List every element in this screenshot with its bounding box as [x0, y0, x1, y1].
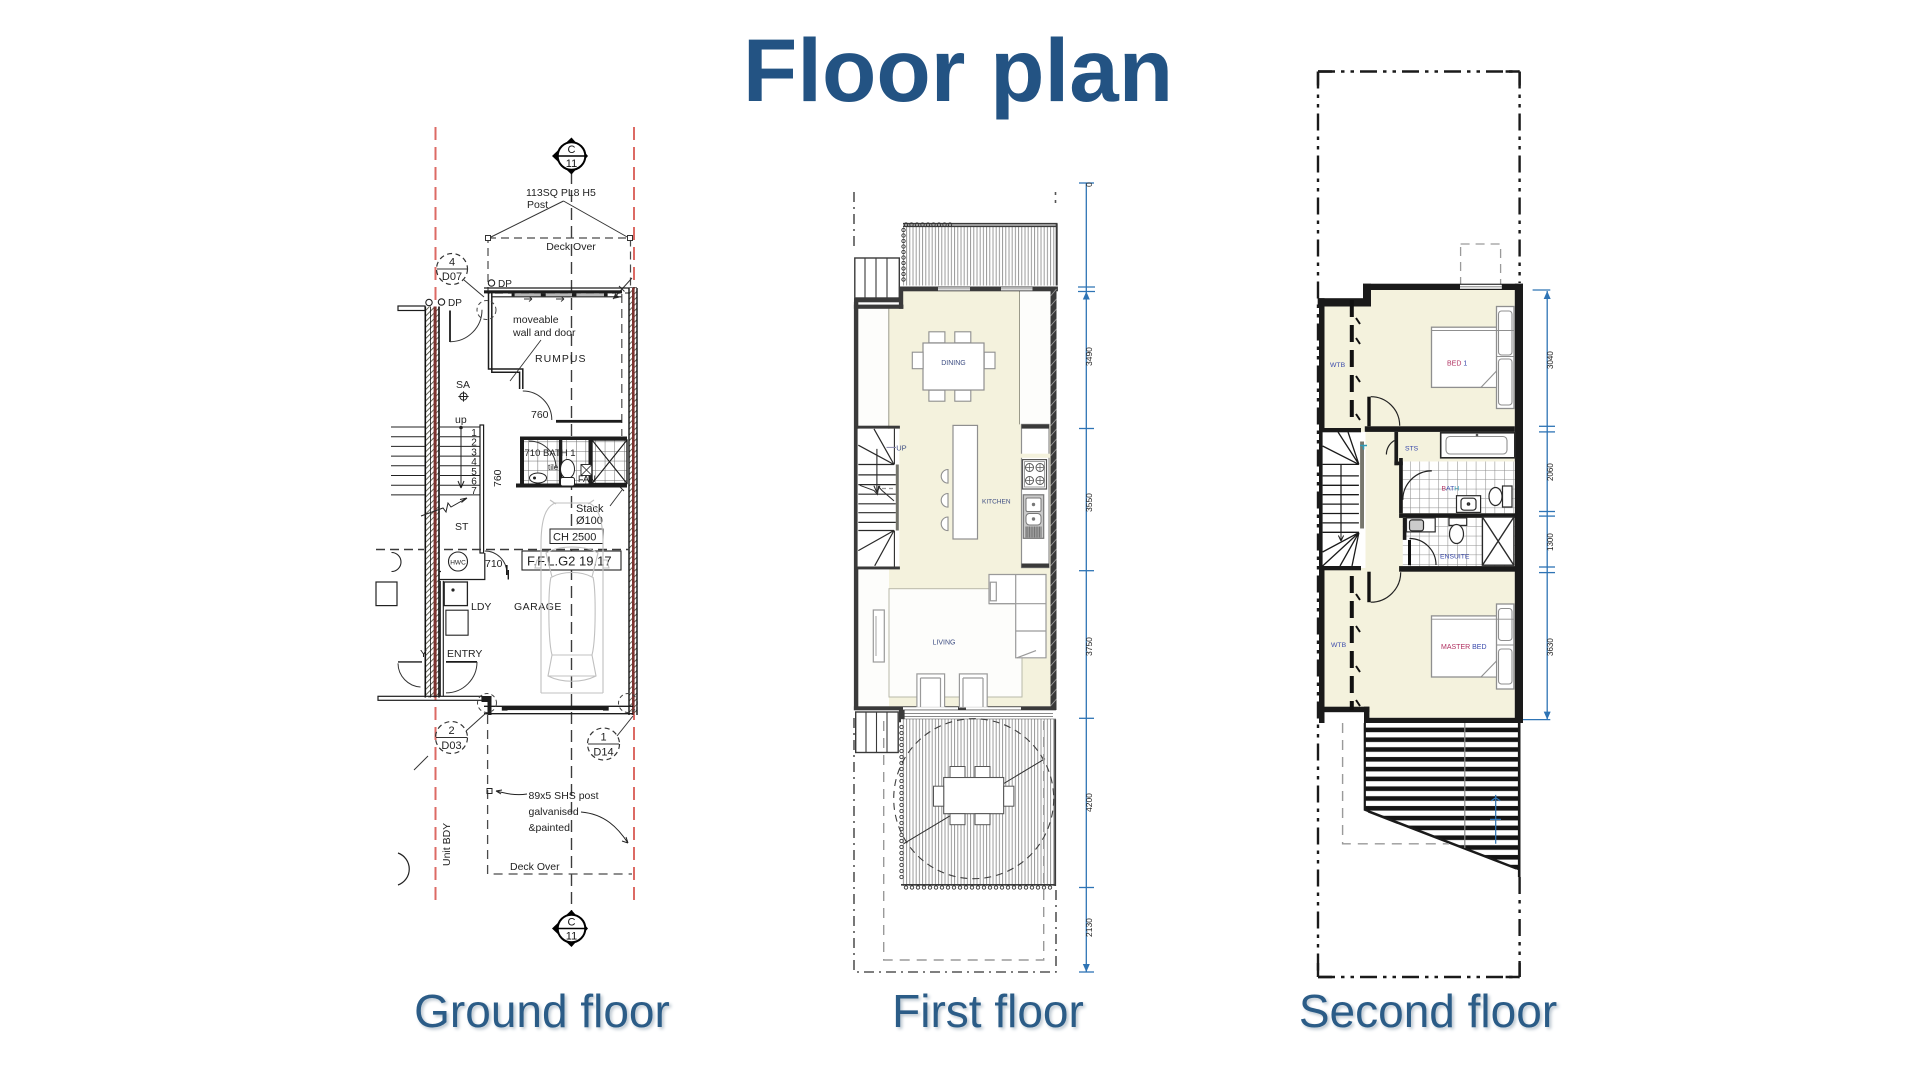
svg-text:3040: 3040 [1546, 351, 1555, 369]
svg-text:760: 760 [492, 469, 504, 487]
svg-text:4: 4 [449, 257, 455, 269]
svg-text:2130: 2130 [1084, 918, 1094, 937]
svg-text:D07: D07 [442, 271, 462, 283]
svg-text:1300: 1300 [1546, 533, 1555, 551]
svg-text:UP: UP [896, 444, 906, 453]
svg-text:HWC: HWC [450, 560, 466, 567]
svg-text:ENSUITE: ENSUITE [1440, 554, 1470, 561]
svg-text:3630: 3630 [1546, 638, 1555, 656]
svg-text:GARAGE: GARAGE [514, 601, 562, 613]
svg-text:galvanised: galvanised [529, 806, 579, 818]
svg-text:Unit BDY: Unit BDY [441, 823, 453, 866]
svg-text:C: C [568, 917, 576, 929]
svg-text:11: 11 [566, 158, 577, 170]
svg-text:710: 710 [485, 558, 503, 570]
svg-text:D14: D14 [593, 747, 613, 759]
svg-text:F.F.L.G2 19.17: F.F.L.G2 19.17 [527, 554, 612, 569]
svg-text:WTB: WTB [1330, 362, 1346, 369]
svg-text:2: 2 [448, 725, 454, 737]
svg-text:ST: ST [455, 521, 469, 533]
svg-text:DP: DP [448, 298, 462, 309]
svg-text:Deck Over: Deck Over [510, 861, 560, 873]
svg-text:2060: 2060 [1546, 463, 1555, 481]
svg-text:Y: Y [420, 648, 427, 660]
svg-text:moveable: moveable [513, 314, 559, 326]
svg-text:1: 1 [600, 732, 606, 744]
svg-text:113SQ PL8 H5: 113SQ PL8 H5 [526, 187, 596, 199]
svg-text:DINING: DINING [941, 360, 966, 367]
svg-text:Deck Over: Deck Over [546, 241, 596, 253]
svg-text:MASTER BED: MASTER BED [1441, 644, 1487, 651]
svg-text:Floor plan: Floor plan [743, 20, 1173, 120]
svg-text:3750: 3750 [1084, 637, 1094, 656]
svg-text:up: up [455, 414, 467, 426]
svg-text:LIVING: LIVING [933, 640, 956, 647]
svg-text:Second floor: Second floor [1299, 985, 1557, 1037]
svg-text:C: C [568, 144, 576, 156]
svg-text:tile: tile [548, 463, 559, 472]
svg-text:wall and door: wall and door [512, 327, 576, 339]
svg-text:11: 11 [566, 931, 577, 943]
svg-text:Stack: Stack [576, 503, 604, 515]
svg-text:3490: 3490 [1084, 347, 1094, 366]
svg-text:Post: Post [527, 199, 548, 211]
svg-text:4200: 4200 [1084, 793, 1094, 812]
svg-text:Ø100: Ø100 [576, 515, 603, 527]
svg-text:D03: D03 [441, 740, 461, 752]
svg-text:SA: SA [456, 379, 470, 391]
svg-text:3550: 3550 [1084, 493, 1094, 512]
svg-text:ENTRY: ENTRY [447, 648, 482, 660]
svg-text:&painted: &painted [529, 822, 571, 834]
svg-text:CH 2500: CH 2500 [553, 532, 596, 544]
svg-text:89x5 SHS post: 89x5 SHS post [529, 790, 599, 802]
svg-text:RUMPUS: RUMPUS [535, 353, 587, 365]
svg-text:760: 760 [531, 409, 549, 421]
svg-text:BED 1: BED 1 [1447, 361, 1467, 368]
svg-text:0: 0 [1084, 182, 1094, 187]
svg-text:STS: STS [1405, 446, 1419, 453]
svg-text:WTB: WTB [1331, 642, 1347, 649]
svg-text:710 BATH 1: 710 BATH 1 [525, 448, 576, 459]
svg-text:LDY: LDY [471, 601, 491, 613]
svg-text:BATH: BATH [1442, 486, 1460, 493]
svg-text:KITCHEN: KITCHEN [982, 499, 1011, 506]
svg-text:7: 7 [471, 486, 477, 497]
svg-text:Ground floor: Ground floor [414, 985, 670, 1037]
svg-text:First floor: First floor [892, 985, 1084, 1037]
